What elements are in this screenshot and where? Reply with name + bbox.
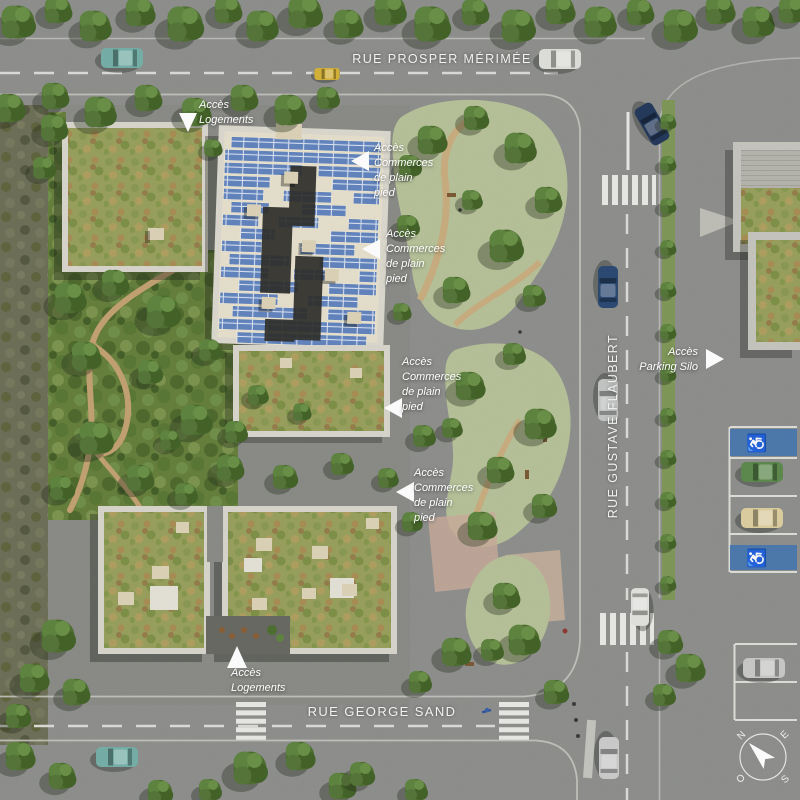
street-label-top: RUE PROSPER MÉRIMÉE [322, 53, 562, 66]
street-label-right: RUE GUSTAVE FLAUBERT [607, 348, 620, 518]
texture-overlay [0, 0, 800, 800]
note-commerces-2: Accès Commerces de plain pied [386, 227, 445, 287]
note-parking-silo: Accès Parking Silo [628, 345, 698, 375]
note-logements-bottom: Accès Logements [231, 666, 285, 696]
note-commerces-1: Accès Commerces de plain pied [374, 141, 433, 201]
site-plan-render: ♿ ♿ [0, 0, 800, 800]
note-commerces-4: Accès Commerces de plain pied [414, 466, 473, 526]
site-plan: ♿ ♿ [0, 0, 800, 800]
note-commerces-3: Accès Commerces de plain pied [402, 355, 461, 415]
note-logements-top: Accès Logements [199, 98, 253, 128]
street-label-bottom: RUE GEORGE SAND [294, 705, 470, 718]
